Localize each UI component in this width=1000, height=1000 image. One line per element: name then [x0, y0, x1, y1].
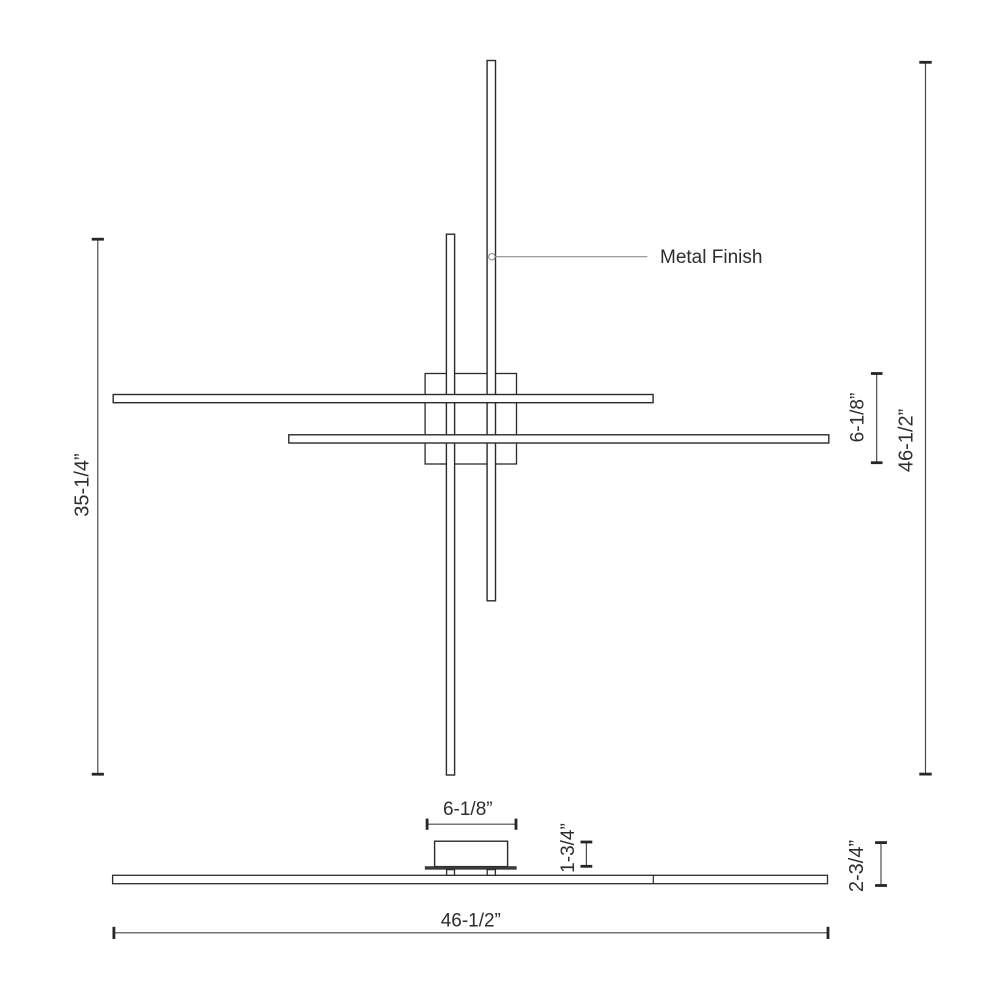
svg-text:6-1/8”: 6-1/8”	[848, 393, 869, 443]
svg-text:46-1/2”: 46-1/2”	[441, 911, 501, 932]
svg-text:46-1/2”: 46-1/2”	[895, 409, 917, 472]
svg-text:6-1/8”: 6-1/8”	[443, 799, 493, 820]
svg-text:35-1/4”: 35-1/4”	[72, 453, 94, 516]
svg-text:2-3/4”: 2-3/4”	[846, 840, 868, 892]
svg-text:1-3/4”: 1-3/4”	[558, 823, 579, 873]
svg-text:Metal Finish: Metal Finish	[660, 247, 762, 268]
